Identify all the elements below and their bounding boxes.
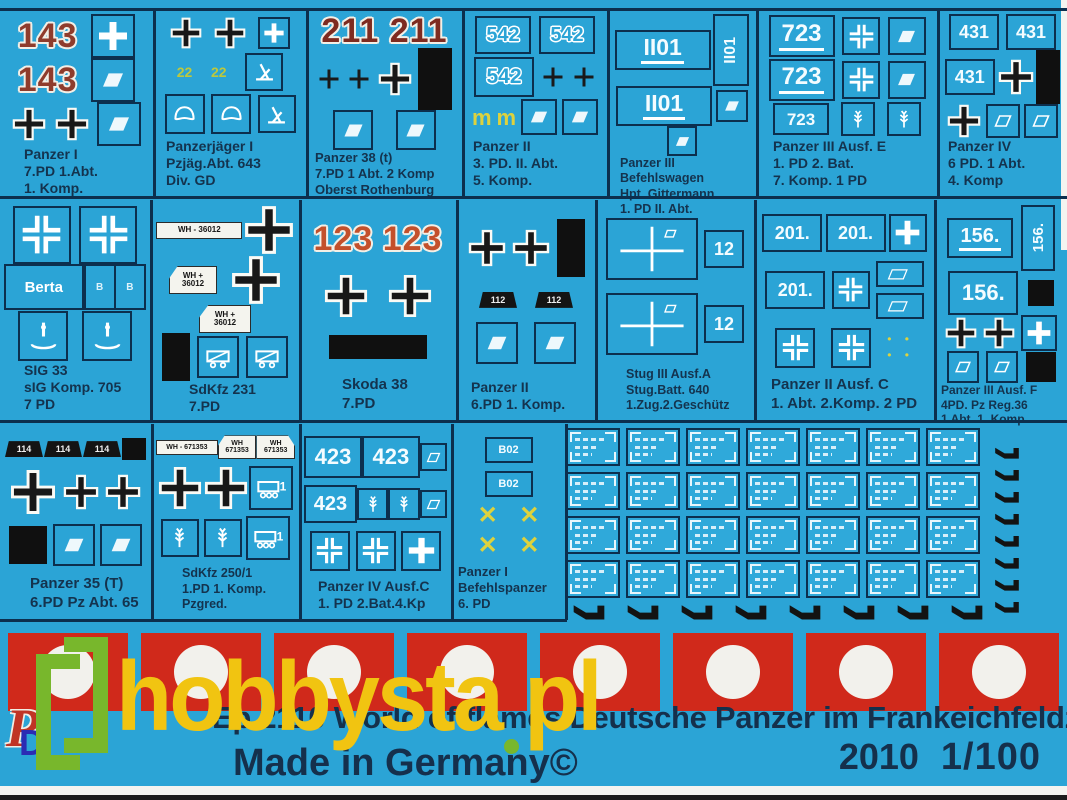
cell-label-line: Panzer 38 (t) [315, 150, 458, 166]
micro-data-plate [746, 472, 800, 510]
plate-corner [570, 496, 581, 506]
cell-label-line: 7.PD [189, 398, 295, 415]
plate-corner [905, 496, 916, 506]
plate-corner [630, 432, 641, 442]
license-plate: WH671353 [256, 435, 295, 459]
broken-cross-icon [848, 66, 875, 93]
cell-label: Panzer III Ausf. E1. PD 2. Bat.7. Komp. … [759, 138, 935, 194]
cell-label-line: 1. Komp. [24, 180, 149, 197]
symbol-row: ✕✕ [456, 535, 561, 557]
turret-number-box-vertical: 156. [1021, 205, 1055, 271]
license-plate: WH +36012 [169, 266, 217, 294]
plate-corner [785, 452, 796, 462]
tactical-rhombus-outline-icon [881, 265, 919, 283]
cell-panzer-ii-3pd: 542542542mmPanzer II3. PD. II. Abt.5. Ko… [465, 12, 605, 194]
turret-number: 423 [314, 494, 347, 514]
symbol-row: 2222 [158, 53, 302, 91]
balkenkreuz-icon [105, 474, 141, 510]
plate-corner [845, 540, 856, 550]
plate-corner [810, 520, 821, 530]
grid-divider [937, 10, 940, 196]
grid-divider [462, 10, 465, 196]
micro-text-line [575, 578, 598, 581]
tactical-rhombus-outline-icon [424, 495, 443, 514]
symbol-row: WH - 671353WH671353WH671353 [156, 435, 295, 459]
micro-data-plate [626, 428, 680, 466]
infantry-gun-icon [18, 311, 68, 361]
plate-corner [665, 564, 676, 574]
cell-panzerjaeger-i: 2222Panzerjäger IPzjäg.Abt. 643Div. GD [156, 12, 304, 194]
turret-number: 201. [838, 224, 873, 242]
turret-number-box: 723 [769, 59, 835, 101]
tactical-rhombus-icon [106, 530, 136, 560]
plate-corner [845, 564, 856, 574]
tactical-rhombus-icon [401, 116, 430, 145]
plate-corner [690, 452, 701, 462]
symbol-row: 1 [156, 516, 295, 560]
cell-label-line: Panzer I [458, 564, 561, 580]
symbol-row [4, 102, 149, 146]
micro-text-line [875, 490, 898, 493]
tactical-rhombus-icon [91, 58, 135, 102]
cell-panzer-iv-6pd: 431431431Panzer IV6 PD. 1 Abt.4. Komp [940, 12, 1065, 194]
plate-corner [750, 520, 761, 530]
tactical-rhombus-outline-icon [881, 297, 919, 315]
symbol-row: 1 [156, 466, 295, 510]
cell-label: SdKfz 2317.PD [153, 381, 297, 420]
thin-cross-icon [347, 67, 371, 91]
plate-corner [870, 452, 881, 462]
symbol-rows: 1212 [598, 203, 752, 367]
yellow-cross-icon: ✕ [519, 535, 539, 557]
oakleaf-icon [161, 519, 199, 557]
helmet-icon [217, 100, 246, 129]
symbol-row: B02 [456, 471, 561, 497]
turret-number-box: 156. [948, 271, 1018, 315]
turret-number-box: 431 [949, 14, 999, 50]
symbol-row: 114114114 [4, 438, 147, 460]
cell-label-line: Panzer III Ausf. E [773, 138, 933, 155]
cell-label: Panzer I7.PD 1.Abt.1. Komp. [2, 146, 151, 202]
plate-corner [570, 432, 581, 442]
turret-number-box: 431 [1006, 14, 1056, 50]
tactical-rhombus-icon [893, 23, 920, 50]
plate-corner [630, 496, 641, 506]
balkenkreuz-icon [10, 469, 56, 515]
symbol-row [4, 311, 146, 361]
micro-data-plate [746, 560, 800, 598]
turret-number-box: 431 [945, 59, 995, 95]
turret-number: B02 [498, 479, 518, 490]
symbol-row: 211211 [311, 14, 458, 48]
symbol-row [461, 322, 591, 364]
symbol-row: 156.156. [939, 205, 1063, 271]
division-hook-icon [842, 598, 876, 621]
balkenkreuz-icon [214, 17, 246, 49]
turret-number: 431 [1016, 23, 1046, 41]
yellow-cross-icon: ✕ [478, 535, 498, 557]
plate-corner [905, 540, 916, 550]
cell-label: Stug III Ausf.AStug.Batt. 6401.Zug.2.Ges… [598, 367, 752, 418]
tactical-rhombus-outline-icon [991, 356, 1013, 378]
license-plate-line: 36012 [214, 319, 236, 327]
symbol-row: 542542 [467, 16, 603, 54]
symbol-row: 723 [761, 59, 933, 101]
plate-corner [750, 432, 761, 442]
plate-corner [845, 432, 856, 442]
symbol-rows: 114114114 [2, 427, 149, 575]
plate-corner [750, 584, 761, 594]
plate-corner [870, 432, 881, 442]
division-hook-icon [680, 598, 714, 621]
micro-text-line [755, 490, 778, 493]
flag-circle [839, 645, 893, 699]
micro-text-line [635, 578, 658, 581]
symbol-rows: 143143 [2, 12, 151, 146]
armored-car-icon [197, 336, 239, 378]
plate-corner [570, 452, 581, 462]
division-hook-icon [994, 596, 1020, 614]
symbol-row: 143 [4, 58, 149, 102]
cell-label: Panzer IBefehlspanzer6. PD [454, 564, 563, 617]
plate-corner [725, 452, 736, 462]
plate-corner [570, 584, 581, 594]
thin-white-cross-icon [612, 298, 692, 350]
infantry-gun-icon [25, 318, 62, 355]
micro-text-line [575, 490, 598, 493]
symbol-row [304, 531, 447, 571]
plate-corner [725, 520, 736, 530]
plate-corner [870, 564, 881, 574]
helmet-icon [170, 100, 199, 129]
grid-divider [934, 200, 937, 420]
cell-panzer-iii-befehlswagen: II01II01II01Panzer IIIBefehlswagenHpt. G… [610, 12, 754, 194]
micro-data-plate [626, 560, 680, 598]
antitank-gun-icon [245, 53, 283, 91]
tactical-rhombus-outline-icon [1024, 104, 1058, 138]
plate-corner [665, 476, 676, 486]
red-turret-number: 211 [321, 14, 379, 48]
symbol-row [304, 335, 452, 359]
balkenkreuz-icon [512, 229, 550, 267]
tactical-rhombus-icon [562, 99, 598, 135]
turret-number-box: 201. [826, 214, 886, 252]
black-rectangle-decal [557, 219, 585, 277]
cell-sdkfz-250-1: WH - 671353WH671353WH67135311SdKfz 250/1… [154, 427, 297, 617]
license-plate: WH - 36012 [156, 222, 242, 239]
symbol-row [4, 469, 147, 515]
micro-data-plate [686, 516, 740, 554]
cell-label-line: 4. Komp [948, 172, 1063, 189]
symbol-row: 431431 [942, 14, 1063, 50]
turret-number: 156. [959, 226, 1002, 251]
symbol-rows: 542542542mm [465, 12, 605, 138]
plate-corner [845, 520, 856, 530]
symbol-row: WH +36012 [155, 305, 295, 333]
helmet-icon [211, 94, 251, 134]
plate-corner [630, 564, 641, 574]
symbol-row: 201. [759, 261, 930, 319]
white-cross-icon [894, 219, 921, 246]
symbol-row [461, 219, 591, 277]
division-hook-icon [994, 486, 1020, 504]
micro-data-plate [566, 516, 620, 554]
plate-corner [810, 496, 821, 506]
tactical-rhombus-icon [567, 104, 593, 130]
plate-corner [570, 520, 581, 530]
cell-label-line: Panzer I [24, 146, 149, 163]
cell-label-line: 1.Zug.2.Geschütz [626, 398, 750, 413]
tactical-rhombus-icon [482, 328, 512, 358]
micro-data-plate [566, 428, 620, 466]
cell-label-line: Hpt. Gittermann [620, 187, 752, 202]
plate-corner [965, 564, 976, 574]
cell-label-line: Panzer III [620, 156, 752, 171]
micro-text-line [695, 490, 718, 493]
division-hook-icon [626, 598, 660, 621]
micro-data-plate [566, 472, 620, 510]
turret-number-box: 201. [765, 271, 825, 309]
cell-label-line: 6 PD. 1 Abt. [948, 155, 1063, 172]
division-hook-icon [994, 552, 1020, 570]
symbol-row: WH - 36012 [155, 205, 295, 255]
tactical-rhombus-icon [526, 104, 552, 130]
symbol-row [4, 206, 146, 264]
tactical-rhombus-icon [97, 102, 141, 146]
plate-corner [570, 564, 581, 574]
symbol-row: 723 [761, 15, 933, 57]
cell-panzer-ii-ausf-c: 201.201.201.• •• •Panzer II Ausf. C1. Ab… [757, 203, 932, 418]
armored-car-icon [246, 336, 288, 378]
red-turret-number: 143 [18, 63, 78, 97]
oakleaf-icon [393, 493, 415, 515]
grid-divider [299, 424, 302, 620]
tactical-rhombus-icon [521, 99, 557, 135]
tactical-rhombus-icon [100, 524, 142, 566]
turret-number: 423 [315, 446, 352, 468]
cell-label-line: Panzerjäger I [166, 138, 302, 155]
plate-corner [630, 476, 641, 486]
black-rectangle-decal [9, 526, 47, 564]
symbol-rows: 112112 [459, 203, 593, 379]
turret-number: 201. [775, 224, 810, 242]
plate-corner [665, 540, 676, 550]
license-plate-line: 671353 [264, 447, 287, 454]
turret-number-box: 12 [704, 230, 744, 268]
flag-circle [972, 645, 1026, 699]
balkenkreuz-icon [244, 205, 294, 255]
micro-text-line [815, 446, 838, 449]
plate-corner [690, 564, 701, 574]
license-plate-line: 671353 [225, 447, 248, 454]
symbol-row: 423 [304, 485, 447, 523]
symbol-row [942, 104, 1063, 138]
cell-label: Panzer 35 (T)6.PD Pz Abt. 65 [2, 575, 149, 617]
symbol-row [939, 351, 1063, 383]
plate-corner [870, 496, 881, 506]
turret-number-box: II01 [616, 86, 712, 126]
plate-corner [930, 584, 941, 594]
turret-number-box: 723 [773, 103, 829, 135]
symbol-row [939, 315, 1063, 351]
turret-number: 431 [955, 68, 985, 86]
plate-corner [930, 540, 941, 550]
cell-label-line: 1.PD 1. Komp. [182, 582, 295, 597]
cell-label-line: SIG 33 [24, 362, 146, 379]
plate-corner [690, 496, 701, 506]
grid-divider [565, 424, 568, 620]
balkenkreuz-icon [170, 17, 202, 49]
plate-corner [810, 432, 821, 442]
broken-cross-icon [356, 531, 396, 571]
license-plate: WH - 671353 [156, 440, 218, 455]
cell-label-line: Pzgred. [182, 597, 295, 612]
plate-corner [665, 520, 676, 530]
cell-label-line: SdKfz 250/1 [182, 566, 295, 581]
division-hook-icon [994, 530, 1020, 548]
division-hook-icon [994, 574, 1020, 592]
cell-label-line: 1. PD 2. Bat. [773, 155, 933, 172]
division-hook-icon [994, 508, 1020, 526]
balkenkreuz-icon [204, 466, 248, 510]
plate-corner [930, 496, 941, 506]
infantry-gun-icon [89, 318, 126, 355]
oakleaf-icon [846, 107, 870, 131]
license-plate: WH671353 [218, 435, 257, 459]
micro-text-line [875, 578, 898, 581]
tactical-rhombus-icon [888, 17, 926, 55]
plate-corner [725, 564, 736, 574]
svg-text:1: 1 [277, 530, 284, 544]
plate-corner [845, 496, 856, 506]
plate-corner [870, 584, 881, 594]
symbol-row [311, 48, 458, 110]
symbol-row: BertaBB [4, 264, 146, 310]
black-number-plate: 112 [479, 292, 517, 308]
symbol-row: 123123 [304, 222, 452, 256]
micro-text-line [575, 446, 598, 449]
micro-text-line [755, 446, 778, 449]
plate-corner [810, 564, 821, 574]
black-rectangle-decal [1036, 50, 1060, 104]
turret-number: 542 [486, 25, 519, 45]
micro-data-plate [866, 560, 920, 598]
plate-corner [690, 476, 701, 486]
micro-data-plate [926, 516, 980, 554]
tactical-rhombus-icon [59, 530, 89, 560]
sheet-bottom-dark-strip [0, 795, 1067, 800]
plate-corner [845, 476, 856, 486]
balkenkreuz-icon [55, 107, 89, 141]
symbol-row [612, 126, 752, 156]
black-rectangle-decal [162, 333, 190, 381]
symbol-row [311, 110, 458, 150]
antitank-gun-icon [263, 101, 290, 128]
plate-corner [930, 520, 941, 530]
plate-corner [665, 432, 676, 442]
micro-text-line [875, 534, 898, 537]
symbol-rows: 211211 [309, 12, 460, 150]
air-recognition-cross-box [606, 293, 698, 355]
division-hook-icon [788, 598, 822, 621]
micro-text-line [695, 578, 718, 581]
tactical-rhombus-outline-icon [420, 490, 447, 518]
symbol-rows: 723723723 [759, 12, 935, 138]
tactical-rhombus-outline-icon [1029, 109, 1053, 133]
broken-cross-icon [775, 328, 815, 368]
black-number-plate: 114 [83, 441, 121, 457]
cell-label: Panzer IV Ausf.C1. PD 2.Bat.4.Kp [302, 578, 449, 617]
cell-stug-iii: 1212Stug III Ausf.AStug.Batt. 6401.Zug.2… [598, 203, 752, 418]
cell-label-line: Panzer II [471, 379, 591, 396]
oakleaf-icon [204, 519, 242, 557]
micro-data-plate [806, 472, 860, 510]
plate-corner [725, 476, 736, 486]
plate-corner [845, 584, 856, 594]
plate-corner [905, 564, 916, 574]
symbol-row: 423423 [304, 436, 447, 478]
plate-corner [870, 540, 881, 550]
white-cross-icon [1021, 315, 1057, 351]
cell-label: Panzer III Ausf. F4PD. Pz Reg.361 Abt. 1… [937, 383, 1065, 432]
plate-corner [965, 584, 976, 594]
balkenkreuz-icon [231, 255, 281, 305]
symbol-rows: B02B02✕✕✕✕ [454, 427, 563, 564]
micro-data-plate [806, 560, 860, 598]
license-plate-line: WH [231, 440, 243, 447]
broken-cross-icon [361, 536, 390, 565]
broken-cross-icon [310, 531, 350, 571]
broken-cross-icon [315, 536, 344, 565]
sheet-right-edge [1061, 0, 1067, 250]
cell-label-line: Skoda 38 [342, 376, 452, 394]
division-hook-icon [994, 442, 1020, 460]
oakleaf-icon [841, 102, 875, 136]
name-plate: Berta [4, 264, 84, 310]
symbol-rows: WH - 36012WH +36012WH +36012 [153, 203, 297, 381]
turret-number-box: B02 [485, 471, 533, 497]
tactical-rhombus-icon [103, 108, 135, 140]
micro-data-plate [806, 428, 860, 466]
micro-data-plate [566, 560, 620, 598]
symbol-row [158, 94, 302, 134]
cell-label-line: 6.PD 1. Komp. [471, 396, 591, 413]
cell-skoda-38: 123123Skoda 387.PD [302, 203, 454, 418]
plate-corner [810, 476, 821, 486]
plate-corner [810, 452, 821, 462]
micro-data-plate [686, 560, 740, 598]
micro-text-line [815, 534, 838, 537]
cell-panzer-i-befehlspanzer: B02B02✕✕✕✕Panzer IBefehlspanzer6. PD [454, 427, 563, 617]
symbol-row [155, 333, 295, 381]
micro-text-line [815, 490, 838, 493]
bridge-class-icon: m [472, 109, 492, 127]
halftrack-icon: 1 [255, 472, 287, 504]
balkenkreuz-icon [945, 317, 977, 349]
turret-number: 12 [714, 240, 734, 258]
yellow-cross-icon: ✕ [478, 505, 498, 527]
turret-number: 542 [550, 25, 583, 45]
plate-corner [605, 476, 616, 486]
letter-plate: BB [84, 264, 147, 310]
bridge-class-icon: m [497, 109, 517, 127]
micro-text-line [635, 534, 658, 537]
plate-corner [630, 584, 641, 594]
broken-cross-icon [781, 333, 810, 362]
white-cross-icon [97, 20, 129, 52]
micro-data-plate [746, 428, 800, 466]
plate-corner [785, 564, 796, 574]
